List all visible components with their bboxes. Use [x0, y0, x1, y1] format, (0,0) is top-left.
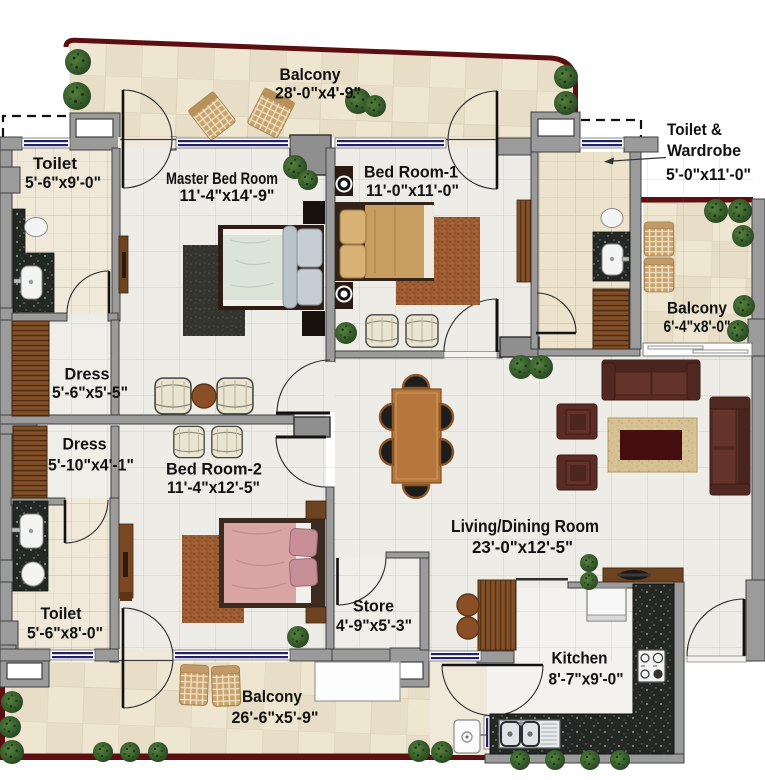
svg-text:23'-0"x12'-5": 23'-0"x12'-5"	[472, 537, 573, 557]
svg-text:Bed Room-1: Bed Room-1	[364, 164, 458, 182]
svg-text:4'-9"x5'-3": 4'-9"x5'-3"	[336, 617, 412, 635]
svg-text:11'-4"x12'-5": 11'-4"x12'-5"	[167, 479, 260, 497]
svg-text:8'-7"x9'-0": 8'-7"x9'-0"	[549, 671, 624, 689]
svg-text:5'-0"x11'-0": 5'-0"x11'-0"	[666, 166, 751, 184]
svg-text:Dress: Dress	[65, 366, 110, 384]
svg-text:Balcony: Balcony	[242, 688, 303, 706]
svg-text:28'-0"x4'-9": 28'-0"x4'-9"	[275, 85, 361, 103]
svg-text:Toilet &: Toilet &	[667, 121, 722, 139]
svg-text:Kitchen: Kitchen	[552, 650, 608, 668]
svg-text:Toilet: Toilet	[41, 605, 82, 623]
svg-text:Dress: Dress	[63, 436, 107, 454]
svg-text:5'-6"x8'-0": 5'-6"x8'-0"	[27, 625, 103, 643]
svg-text:6'-4"x8'-0": 6'-4"x8'-0"	[664, 318, 731, 336]
svg-text:Wardrobe: Wardrobe	[667, 142, 741, 160]
svg-text:Bed Room-2: Bed Room-2	[166, 461, 262, 479]
svg-text:5'-6"x5'-5": 5'-6"x5'-5"	[52, 384, 128, 402]
svg-text:Master Bed Room: Master Bed Room	[166, 170, 278, 188]
svg-text:Balcony: Balcony	[280, 66, 342, 84]
svg-text:5'-10"x4'-1": 5'-10"x4'-1"	[48, 457, 134, 475]
svg-text:5'-6"x9'-0": 5'-6"x9'-0"	[25, 174, 101, 192]
svg-text:11'-4"x14'-9": 11'-4"x14'-9"	[180, 187, 275, 205]
svg-text:Balcony: Balcony	[667, 300, 728, 318]
svg-text:Toilet: Toilet	[33, 155, 78, 173]
svg-text:26'-6"x5'-9": 26'-6"x5'-9"	[232, 709, 319, 727]
svg-text:Store: Store	[353, 598, 394, 616]
svg-text:Living/Dining Room: Living/Dining Room	[451, 516, 599, 536]
svg-text:11'-0"x11'-0": 11'-0"x11'-0"	[366, 182, 459, 200]
